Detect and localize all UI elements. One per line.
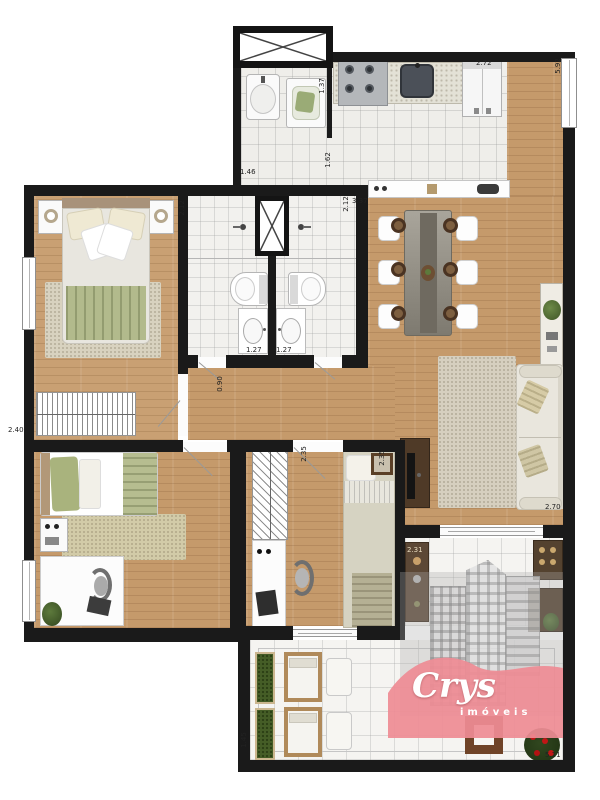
fridge-handle-icon	[486, 108, 491, 114]
bathroom-shaft-box	[255, 196, 289, 256]
shelf-item	[54, 524, 59, 529]
toilet-bowl	[301, 277, 321, 301]
terrace-planter	[255, 652, 275, 704]
burner-icon	[365, 84, 374, 93]
dim-label: 2.72	[476, 59, 492, 67]
dim-label: 3.37	[352, 197, 368, 205]
dim-label: 2.40	[8, 426, 24, 434]
kitchen-peninsula-counter	[368, 180, 510, 198]
terrace-planter	[255, 708, 275, 760]
lounge-headrest	[289, 713, 317, 723]
refrigerator	[462, 60, 502, 117]
bedroom3-desk	[252, 540, 286, 628]
master-wardrobe	[36, 392, 136, 436]
faucet-icon	[263, 328, 266, 331]
desk-item	[266, 549, 271, 554]
floor-plan: Crys imóveis 2.72 5.92 1.37 1.62 1.46 3.…	[0, 0, 600, 800]
dim-label: 5.11	[545, 751, 561, 759]
sideboard-item	[546, 332, 558, 340]
shower-arm	[303, 226, 311, 228]
faucet-icon	[415, 63, 420, 68]
wall-right	[563, 126, 575, 772]
tv-icon	[407, 453, 415, 499]
bed-pillow-green	[50, 456, 81, 511]
chair-seat	[295, 568, 309, 588]
dim-label: 2.70	[545, 503, 561, 511]
dim-label: 1.46	[240, 168, 256, 176]
bedroom3-wardrobe	[252, 450, 288, 540]
laundry-washtub	[246, 74, 280, 120]
logo-name: Crys	[412, 666, 496, 706]
toilet-bowl	[235, 277, 255, 301]
wall-dining-bath	[356, 185, 368, 368]
master-window	[22, 257, 36, 330]
shaft-x-icon	[240, 33, 326, 61]
burner-icon	[345, 84, 354, 93]
shower-glass-line	[188, 258, 268, 259]
toilet-tank	[259, 275, 267, 304]
bed-headboard	[62, 198, 150, 208]
master-bed	[62, 198, 150, 344]
dining-chair	[443, 218, 458, 233]
wall-hall-bottom-a	[24, 440, 183, 452]
dim-label: 2.12	[342, 196, 350, 212]
bed-pillow	[79, 459, 101, 509]
dim-label: 5.92	[554, 58, 562, 74]
toilet-right	[288, 272, 326, 306]
bed-folded-blanket	[352, 573, 392, 627]
wall-terrace-left	[238, 626, 250, 772]
dim-label: 2.12	[178, 200, 186, 216]
grill-knob-icon	[550, 559, 556, 565]
shelf-item	[45, 537, 59, 545]
living-rug	[438, 356, 516, 508]
dining-chair-pad	[456, 216, 478, 241]
wall-terrace-bottom	[238, 760, 575, 772]
bed-blanket-green	[123, 453, 157, 515]
wall-bath-divider	[268, 256, 276, 366]
dining-chair-pad	[456, 304, 478, 329]
bed-headboard	[41, 453, 50, 515]
lounge-headrest	[289, 658, 317, 668]
wall-bed2-bed3	[230, 448, 246, 642]
master-nightstand-left	[38, 200, 64, 234]
wardrobe-rail	[37, 414, 135, 415]
sideboard-plant-icon	[543, 300, 561, 320]
logo-tagline: imóveis	[460, 707, 531, 718]
toilet-tank	[290, 275, 298, 304]
kitchen-right-floor	[507, 62, 563, 196]
dim-label: 2.31	[407, 546, 423, 554]
wall-master-bath	[178, 196, 188, 366]
washtub-bowl	[250, 84, 276, 114]
wall-top-kitchen	[333, 52, 575, 62]
fridge-handle-icon	[474, 108, 479, 114]
dining-chair	[443, 262, 458, 277]
wall-bath-top	[178, 185, 368, 196]
dim-label: 1.62	[324, 152, 332, 168]
grill-knob-icon	[539, 547, 545, 553]
bedroom2-window	[22, 560, 36, 622]
lounge-ottoman	[326, 658, 352, 696]
lounge-ottoman	[326, 712, 352, 750]
tv-knob	[417, 473, 421, 477]
wardrobe-rail	[270, 451, 271, 539]
counter-jar-icon	[382, 186, 387, 191]
burner-icon	[365, 65, 374, 74]
shelf-item	[45, 524, 50, 529]
chair-seat	[94, 576, 108, 596]
wall-bed2-bottom	[24, 628, 246, 642]
burner-icon	[345, 65, 354, 74]
kitchen-sink	[400, 64, 434, 98]
dim-label: 1.37	[318, 78, 326, 94]
dining-sideboard	[540, 283, 563, 367]
dining-chair-pad	[456, 260, 478, 285]
dining-chair	[391, 262, 406, 277]
wall-terrace-top-b	[357, 626, 405, 640]
bedroom2-shelf	[40, 518, 68, 552]
toilet-left	[230, 272, 268, 306]
sofa-pillow	[516, 379, 550, 415]
dining-chair	[391, 306, 406, 321]
centerpiece-plant-icon	[425, 269, 431, 275]
living-terrace-sliding-door	[440, 527, 543, 536]
sink-basin	[243, 318, 263, 344]
lounge-chair	[284, 652, 322, 702]
faucet-icon	[278, 328, 281, 331]
kitchen-window	[561, 58, 577, 128]
lounge-chair	[284, 707, 322, 757]
dim-label: 0.90	[216, 376, 224, 392]
dim-label: 1.27	[276, 346, 292, 354]
laptop-icon	[255, 590, 278, 617]
dim-label: 1.27	[246, 346, 262, 354]
shaft-x-icon	[260, 201, 284, 251]
dim-label: 1.45	[240, 732, 248, 748]
lamp-icon	[154, 209, 168, 223]
bedroom3-terrace-sliding-door	[293, 629, 357, 637]
counter-board-icon	[427, 184, 437, 194]
wall-left-a	[24, 185, 34, 257]
grill-knob-icon	[550, 547, 556, 553]
plant-icon	[42, 602, 62, 626]
wall-laundry-kitchen	[327, 60, 332, 138]
master-door	[178, 374, 188, 436]
sink-basin	[281, 318, 301, 344]
lamp-icon	[44, 209, 58, 223]
wall-living-terrace-b	[543, 525, 563, 538]
sofa-armrest	[519, 365, 562, 378]
bedroom2-door	[183, 442, 227, 452]
fridge-divider	[482, 69, 483, 114]
bedroom2-rug	[62, 514, 186, 560]
wall-master-top	[24, 185, 188, 196]
wall-bath-bottom-a	[186, 355, 198, 368]
counter-jar-icon	[374, 186, 379, 191]
bed-sheet-stripes	[344, 481, 394, 503]
faucet-icon	[261, 76, 265, 83]
wall-living-terrace-a	[405, 525, 440, 538]
dim-label: 2.35	[300, 446, 308, 462]
sofa	[516, 364, 563, 510]
desk-item	[257, 549, 262, 554]
washer-towel	[295, 91, 316, 113]
dining-chair	[391, 218, 406, 233]
bedroom3-bed	[343, 450, 395, 628]
grill-knob-icon	[539, 559, 545, 565]
sofa-seam	[519, 437, 561, 438]
stove	[338, 56, 388, 106]
bed-throw-blanket	[66, 286, 146, 340]
bench-bowl-icon	[413, 557, 421, 565]
desk-chair	[288, 556, 318, 600]
counter-bottles-icon	[477, 184, 499, 194]
sideboard-item	[547, 346, 557, 352]
shower-glass-line	[276, 258, 356, 259]
master-nightstand-right	[148, 200, 174, 234]
bedroom2-bed	[40, 452, 158, 516]
shower-arm	[233, 226, 241, 228]
sofa-pillow	[517, 444, 549, 479]
dining-chair	[443, 306, 458, 321]
elevator-shaft-box	[233, 26, 333, 68]
dim-label: 2.35	[378, 450, 386, 466]
wall-bath-bottom-b	[226, 355, 314, 368]
